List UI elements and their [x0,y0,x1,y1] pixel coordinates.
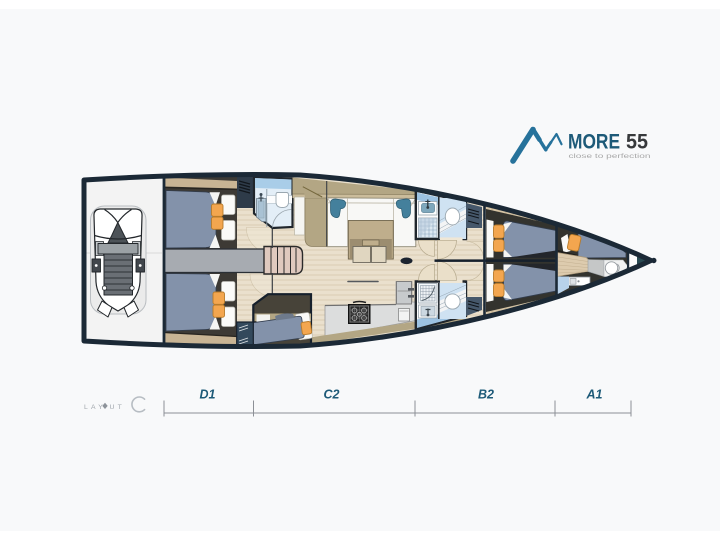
svg-text:A1: A1 [586,387,603,401]
svg-text:55: 55 [626,131,648,154]
svg-text:B2: B2 [478,387,494,401]
svg-text:UT: UT [110,404,125,411]
svg-text:C2: C2 [324,387,340,401]
svg-text:MORE: MORE [568,131,620,154]
svg-text:D1: D1 [200,387,216,401]
svg-text:close to perfection: close to perfection [569,153,652,160]
svg-text:LAY: LAY [84,404,106,411]
